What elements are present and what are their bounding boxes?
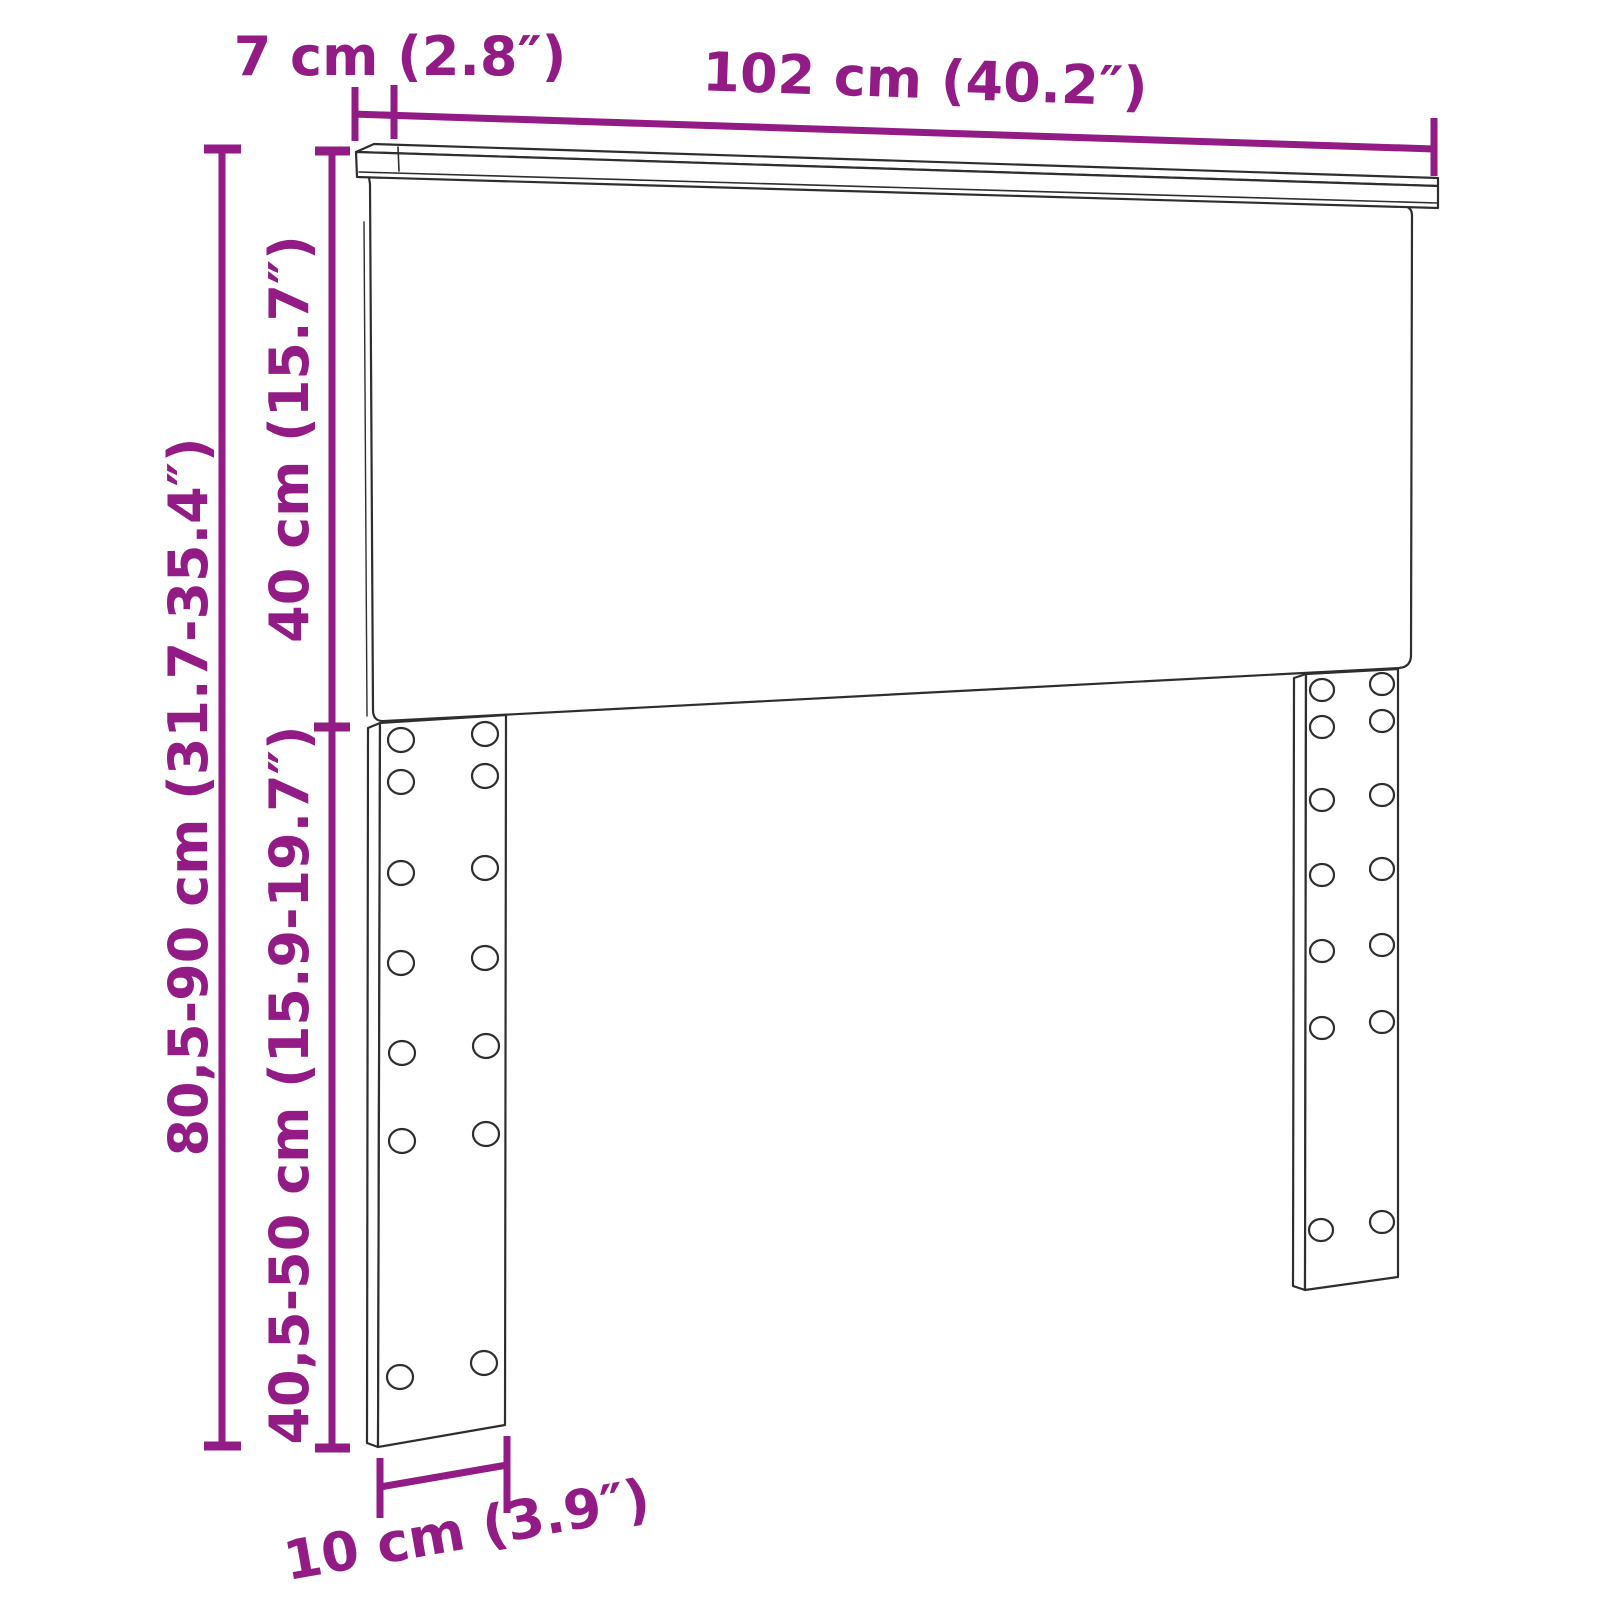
left-leg — [367, 715, 506, 1447]
label-shelf-depth: 7 cm (2.8″) — [234, 25, 567, 88]
label-leg-height: 40,5-50 cm (15.9-19.7″) — [258, 725, 321, 1444]
right-leg-front-face — [1305, 669, 1398, 1290]
right-leg — [1293, 669, 1398, 1290]
diagram-canvas: 7 cm (2.8″) 102 cm (40.2″) 80,5-90 cm (3… — [0, 0, 1600, 1600]
headboard-dimension-diagram: 7 cm (2.8″) 102 cm (40.2″) 80,5-90 cm (3… — [0, 0, 1600, 1600]
headboard-outline — [356, 144, 1438, 1447]
label-total-height: 80,5-90 cm (31.7-35.4″) — [157, 437, 220, 1156]
shelf-cap-edge — [398, 147, 399, 171]
label-leg-width: 10 cm (3.9″) — [279, 1467, 654, 1593]
panel-front-face — [369, 176, 1412, 721]
headboard-panel — [364, 176, 1412, 721]
label-width: 102 cm (40.2″) — [701, 40, 1148, 119]
left-leg-front-face — [378, 715, 506, 1447]
panel-left-edge-line — [364, 222, 367, 716]
label-panel-height: 40 cm (15.7″) — [258, 235, 321, 643]
